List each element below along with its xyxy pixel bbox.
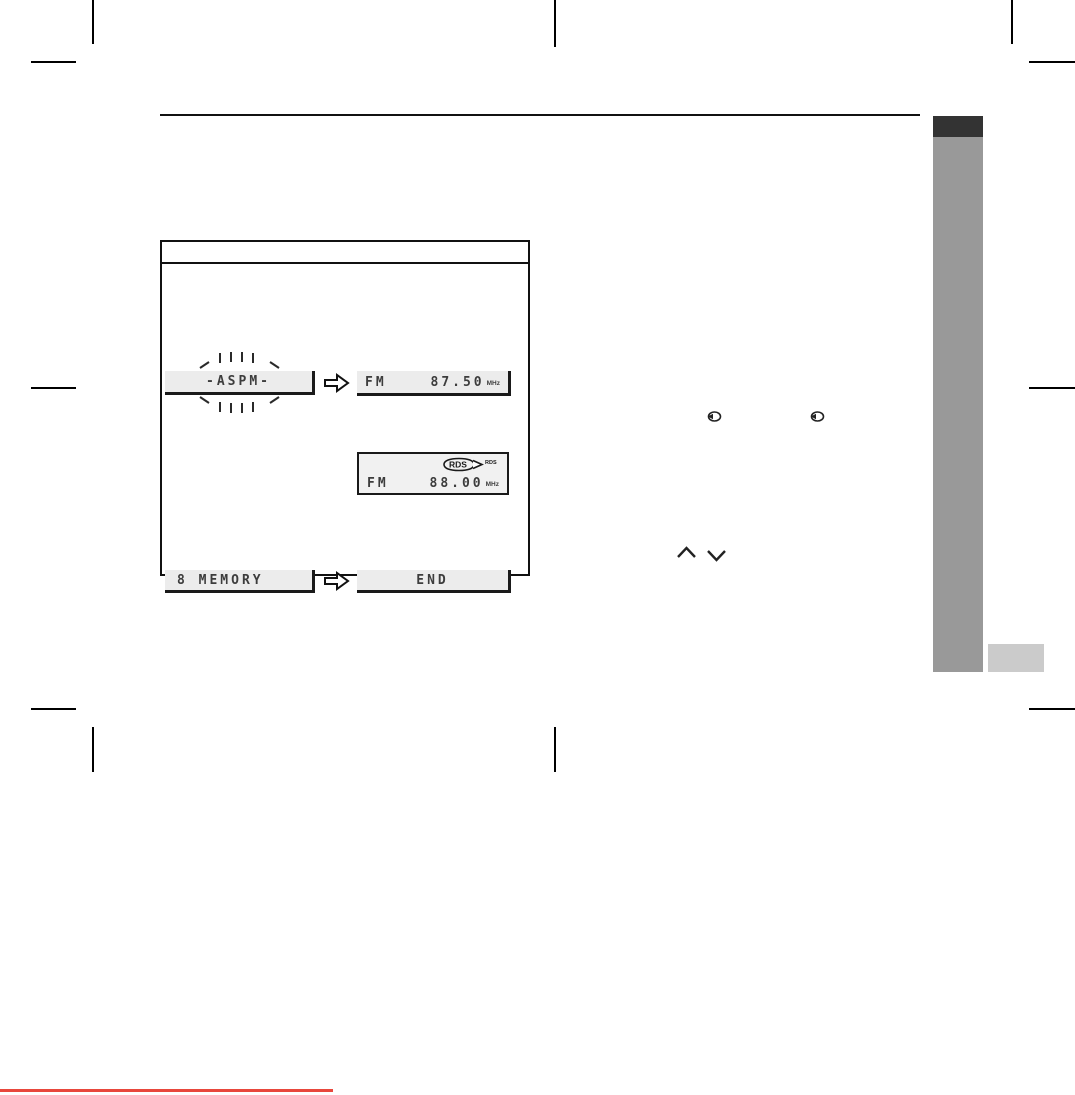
lcd-end-text: END [416,573,448,588]
lcd-display-memory: 8 MEMORY [165,570,315,593]
rds-badge-caption: RDS [485,460,497,466]
chevron-down-icon [706,549,727,563]
lcd-rds-frequency-row: FM 88.00 MHz [359,476,507,491]
footer-accent-rule [0,1089,333,1092]
lcd-aspm-text: -ASPM- [206,374,271,389]
page-number-chip [988,644,1044,672]
display-sequence-figure: -ASPM- [160,240,530,576]
chevron-up-icon [676,545,697,559]
lcd-frequency-group: 88.00 MHz [430,476,500,491]
crop-mark [31,708,76,710]
chapter-tab [933,116,983,137]
lcd-frequency-unit: MHz [486,481,499,488]
jog-dial-icon [706,410,722,423]
lcd-memory-text: 8 MEMORY [177,573,264,588]
lcd-display-end: END [357,570,511,593]
manual-page: -ASPM- [0,0,1075,1095]
chapter-sidebar-band [933,137,983,672]
crop-mark [554,0,556,47]
lcd-frequency-value: 88.00 [430,476,484,491]
lcd-band-label: FM [365,375,387,390]
right-arrow-icon [323,372,350,394]
crop-mark [554,727,556,772]
crop-mark [92,0,94,44]
rds-badge-icon: RDS RDS [441,456,503,473]
lcd-band-label: FM [367,476,389,491]
jog-dial-icon [809,410,825,423]
right-arrow-icon [323,570,350,592]
lcd-display-aspm: -ASPM- [165,371,315,395]
crop-mark [1029,387,1075,389]
lcd-frequency-unit: MHz [487,380,500,387]
lcd-frequency-group: 87.50 MHz [431,375,501,390]
lcd-display-fm-8750: FM 87.50 MHz [357,371,511,396]
page-header-rule [160,114,920,116]
rds-badge-label: RDS [449,460,467,470]
lcd-frequency-value: 87.50 [431,375,485,390]
crop-mark [31,61,76,63]
lcd-display-rds: RDS RDS FM 88.00 MHz [357,452,509,495]
crop-mark [1029,61,1075,63]
figure-header-band [162,242,528,264]
crop-mark [1029,708,1075,710]
crop-mark [92,727,94,772]
figure-body: -ASPM- [162,264,528,574]
crop-mark [31,387,76,389]
crop-mark [1011,0,1013,44]
